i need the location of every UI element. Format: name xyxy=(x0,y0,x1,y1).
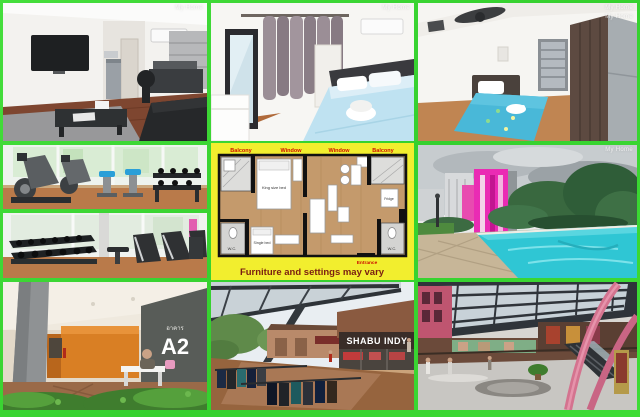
photo-bedroom-double: My Home xyxy=(211,3,414,141)
plan-label-wc-right: W.C. xyxy=(388,246,397,251)
fridge-area: Fridge xyxy=(381,189,398,207)
balcony-right-area xyxy=(371,157,404,184)
plan-label-king-bed: King size bed xyxy=(262,185,286,190)
gym-weights-photo xyxy=(3,213,207,278)
listing-photo-collage: My Home xyxy=(0,0,640,417)
photo-mall-atrium xyxy=(418,282,637,410)
photo-pool: My Home xyxy=(418,145,637,278)
pool-photo xyxy=(418,145,637,278)
shabu-indy-storefront: SHABU INDY xyxy=(337,300,414,375)
window-blind xyxy=(538,39,568,91)
floor-plan: Balcony Window Window Balcony King size … xyxy=(211,143,414,280)
plan-label-single-bed: Single bed xyxy=(254,241,271,245)
building-sign-code: A2 xyxy=(161,334,189,359)
wall-tv xyxy=(31,35,89,71)
photo-gym-cardio xyxy=(3,145,207,209)
fire-extinguisher xyxy=(63,348,66,358)
building-sign-thai: อาคาร xyxy=(166,325,184,332)
air-conditioner xyxy=(361,19,403,34)
pink-building-corner xyxy=(418,286,452,338)
building-far xyxy=(418,189,444,221)
pillar xyxy=(99,213,109,263)
mall-atrium-photo xyxy=(418,282,637,410)
photo-mall-walkway: SHABU INDY xyxy=(211,282,414,410)
plan-label-window-left: Window xyxy=(280,148,302,154)
wc-right-area: W.C. xyxy=(381,223,404,254)
fridge xyxy=(106,59,121,99)
plan-label-fridge: Fridge xyxy=(384,197,394,201)
photo-living-room: My Home xyxy=(3,3,207,141)
person xyxy=(142,349,152,359)
bedroom-double-photo xyxy=(211,3,414,141)
photo-bedroom-single: My Home My Home xyxy=(418,3,637,141)
plan-caption: Furniture and settings may vary xyxy=(240,267,385,278)
photo-gym-weights xyxy=(3,213,207,278)
entrance-door xyxy=(357,253,375,257)
mall-walkway-photo: SHABU INDY xyxy=(211,282,414,410)
dresser xyxy=(211,95,249,141)
plan-label-entrance: Entrance xyxy=(357,260,378,266)
plan-label-wc-left: W.C. xyxy=(228,246,237,251)
plan-label-balcony-left: Balcony xyxy=(230,148,252,154)
wardrobe xyxy=(570,15,637,141)
lamp-post xyxy=(436,197,439,227)
treadmills xyxy=(133,230,207,263)
bedroom-single-photo xyxy=(418,3,637,141)
restaurant-sign: SHABU INDY xyxy=(346,336,407,346)
gym-cardio-photo xyxy=(3,145,207,209)
office-chair xyxy=(137,70,155,88)
floor-plan-drawing: Balcony Window Window Balcony King size … xyxy=(211,143,414,280)
photo-building-a2: อาคาร A2 xyxy=(3,282,207,410)
desk xyxy=(149,69,203,93)
living-room-photo xyxy=(3,3,207,141)
banner-stand xyxy=(614,350,629,394)
balcony-left-area xyxy=(221,157,251,191)
lobby-photo: อาคาร A2 xyxy=(3,282,207,410)
plan-label-balcony-right: Balcony xyxy=(372,148,394,154)
wc-left-area: W.C. xyxy=(221,223,245,254)
notice-board xyxy=(49,338,62,358)
plan-label-window-right: Window xyxy=(328,148,350,154)
